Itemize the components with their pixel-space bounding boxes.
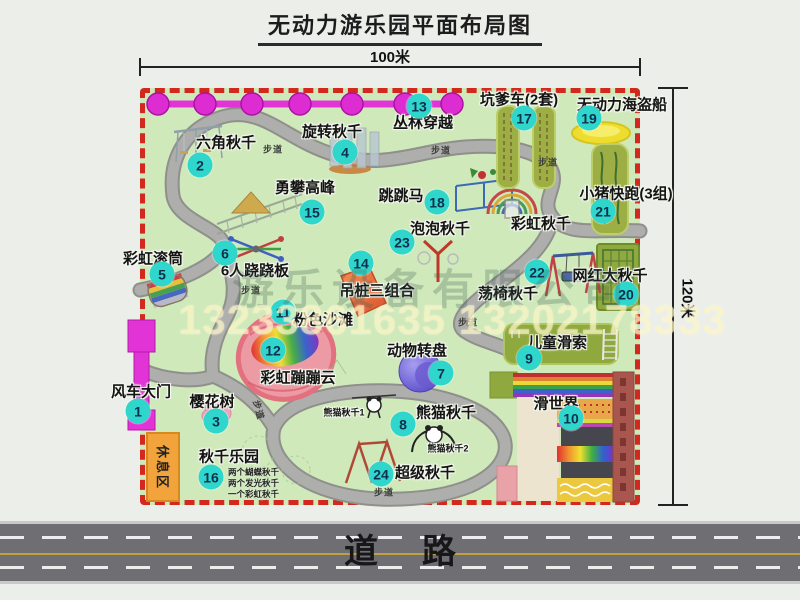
swing-paradise-note-2: 两个发光秋千 xyxy=(228,478,279,489)
park-area xyxy=(140,88,640,505)
swing-paradise-note-3: 一个彩虹秋千 xyxy=(228,489,279,500)
dimension-tick xyxy=(658,87,688,89)
dimension-tick xyxy=(658,504,688,506)
rest-area-label: 休息区 xyxy=(154,444,173,489)
dimension-label-width: 100米 xyxy=(370,46,410,67)
dimension-tick xyxy=(139,58,141,76)
swing-paradise-note-1: 两个蝴蝶秋千 xyxy=(228,467,279,478)
rest-area: 休息区 xyxy=(146,432,180,502)
dimension-label-height: 120米 xyxy=(678,278,699,318)
swing-paradise-notes: 两个蝴蝶秋千两个发光秋千一个彩虹秋千 xyxy=(228,467,279,500)
dimension-line-right xyxy=(672,88,674,505)
road-label: 道路 xyxy=(0,524,800,573)
dimension-tick xyxy=(639,58,641,76)
page: { "title": "无动力游乐园平面布局图", "dims": { "top… xyxy=(0,0,800,600)
page-title: 无动力游乐园平面布局图 xyxy=(258,8,542,46)
